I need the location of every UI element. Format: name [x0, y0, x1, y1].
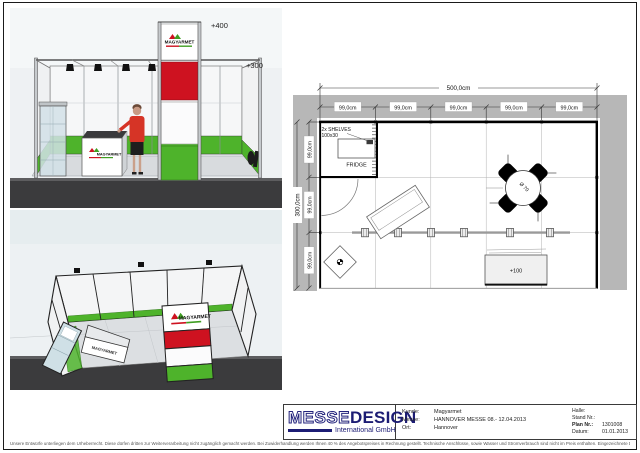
render-front-view: MAGYARMET +400 +300 MAGYARMET	[10, 8, 282, 208]
svg-text:99,0cm: 99,0cm	[339, 105, 357, 111]
field-value-messe: HANNOVER MESSE 08.- 12.04.2013	[434, 416, 526, 424]
svg-text:99,0cm: 99,0cm	[505, 105, 523, 111]
storage-right-wall	[376, 122, 378, 178]
svg-text:99,0cm: 99,0cm	[560, 105, 578, 111]
tower-green-panel	[166, 364, 213, 382]
render-top-view: MAGYARMET MAGYARMET	[10, 210, 282, 390]
storage-bottom-wall	[320, 176, 378, 178]
spotlight-icon	[122, 64, 130, 71]
field-value-datum: 01.01.2013	[602, 429, 628, 436]
spotlight-icon	[206, 260, 212, 265]
footer-disclaimer: Unsere Entwürfe unterliegen dem Urheberr…	[10, 441, 630, 446]
dimension-row-labels: 99,0cm 99,0cm 99,0cm	[304, 136, 314, 274]
company-logo: MESSEDESIGN International GmbH	[284, 405, 396, 439]
field-label-messe: Messe:	[402, 416, 434, 424]
field-label-datum: Datum:	[572, 429, 602, 436]
tower-green-panel	[161, 146, 198, 180]
counter-logo-text: MAGYARMET	[97, 153, 122, 157]
spotlight-icon	[74, 268, 80, 273]
field-value-kunde: Magyarmet	[434, 408, 526, 416]
tower-logo-text: MAGYARMET	[165, 40, 195, 45]
spotlight-icon	[148, 64, 156, 71]
glass-vitrine	[39, 102, 67, 176]
field-label-halle: Halle:	[572, 408, 602, 415]
svg-text:99,0cm: 99,0cm	[307, 141, 313, 158]
field-value-halle	[602, 408, 628, 415]
logo-messe-text: MESSE	[288, 409, 350, 426]
title-block: MESSEDESIGN International GmbH Kunde: Me…	[283, 404, 637, 440]
brand-tower: MAGYARMET	[162, 303, 215, 382]
svg-text:99,0cm: 99,0cm	[307, 196, 313, 213]
spotlight-icon	[138, 262, 144, 267]
field-label-plan-nr: Plan Nr.:	[572, 422, 602, 429]
field-value-ort: Hannover	[434, 424, 526, 432]
floor-plan: 500,0cm 99,0cm 99,0cm 99,0cm 99,0cm 99,0…	[290, 76, 638, 296]
tower-red-panel	[161, 62, 198, 100]
field-label-ort: Ort:	[402, 424, 434, 432]
svg-text:99,0cm: 99,0cm	[394, 105, 412, 111]
back-wall	[50, 66, 242, 154]
elevation-label-300: +300	[246, 61, 263, 70]
field-value-plan-nr: 1301008	[602, 422, 628, 429]
svg-text:99,0cm: 99,0cm	[307, 252, 313, 269]
field-value-stand-nr	[602, 415, 628, 422]
dimension-label-total-width: 500,0cm	[447, 85, 471, 92]
project-fields-right: Halle: Stand Nr.: Plan Nr.: Datum: 13010…	[572, 408, 628, 439]
spotlight-icon	[66, 64, 74, 71]
project-fields-left: Kunde: Messe: Ort: Magyarmet HANNOVER ME…	[402, 408, 526, 439]
shelves-size-label: 100x30	[322, 133, 339, 139]
title-block-fields: Kunde: Messe: Ort: Magyarmet HANNOVER ME…	[396, 405, 636, 439]
plus100-label: +100	[510, 269, 522, 275]
info-counter: MAGYARMET	[82, 131, 127, 176]
field-label-kunde: Kunde:	[402, 408, 434, 416]
logo-underline-bar	[288, 429, 332, 432]
logo-subtitle: International GmbH	[335, 427, 396, 434]
dimension-label-total-depth: 300,0cm	[296, 193, 302, 216]
elevation-label-400: +400	[211, 21, 228, 30]
field-label-stand-nr: Stand Nr.:	[572, 415, 602, 422]
spotlight-icon	[94, 64, 102, 71]
fridge-label: FRIDGE	[346, 163, 367, 169]
hall-floor	[10, 178, 282, 208]
svg-text:99,0cm: 99,0cm	[450, 105, 468, 111]
